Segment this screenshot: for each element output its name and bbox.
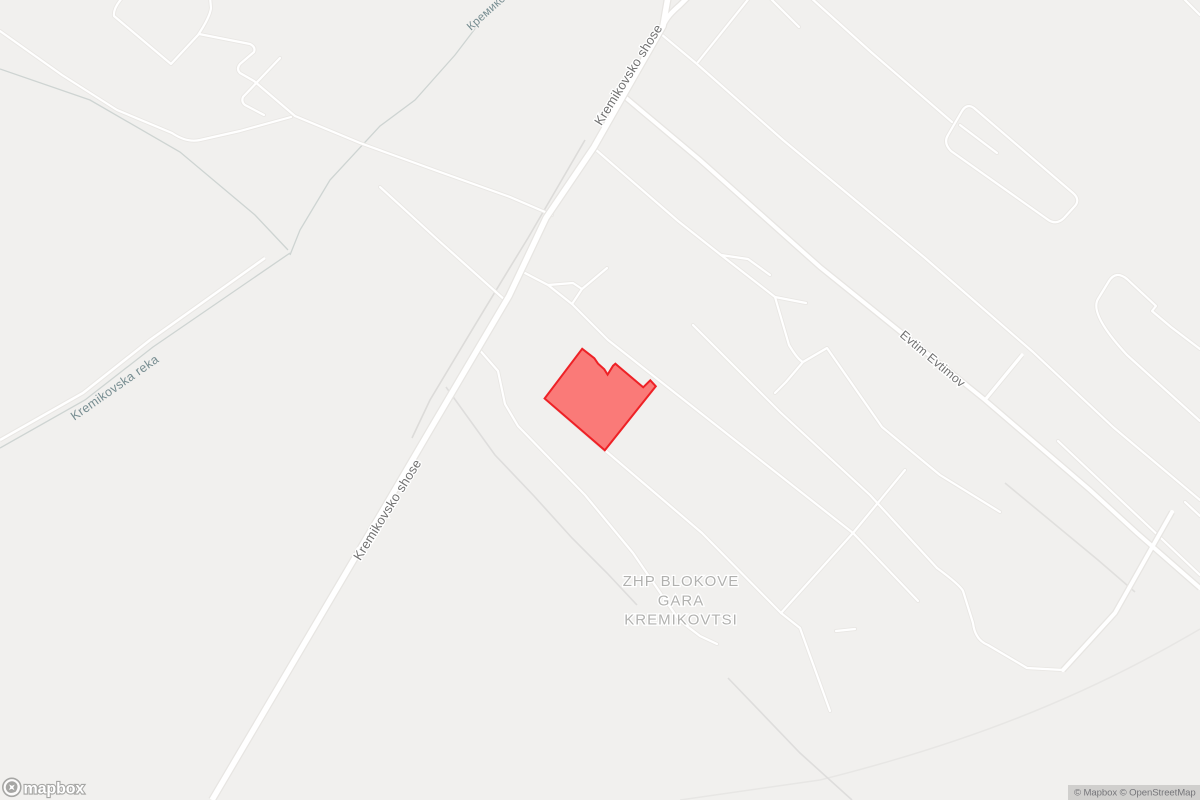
svg-text:KREMIKOVTSI: KREMIKOVTSI: [624, 612, 738, 629]
svg-text:© Mapbox © OpenStreetMap: © Mapbox © OpenStreetMap: [1074, 788, 1196, 799]
svg-text:mapbox: mapbox: [24, 781, 85, 798]
svg-text:ZHP BLOKOVE: ZHP BLOKOVE: [623, 573, 740, 590]
svg-text:GARA: GARA: [658, 593, 705, 610]
